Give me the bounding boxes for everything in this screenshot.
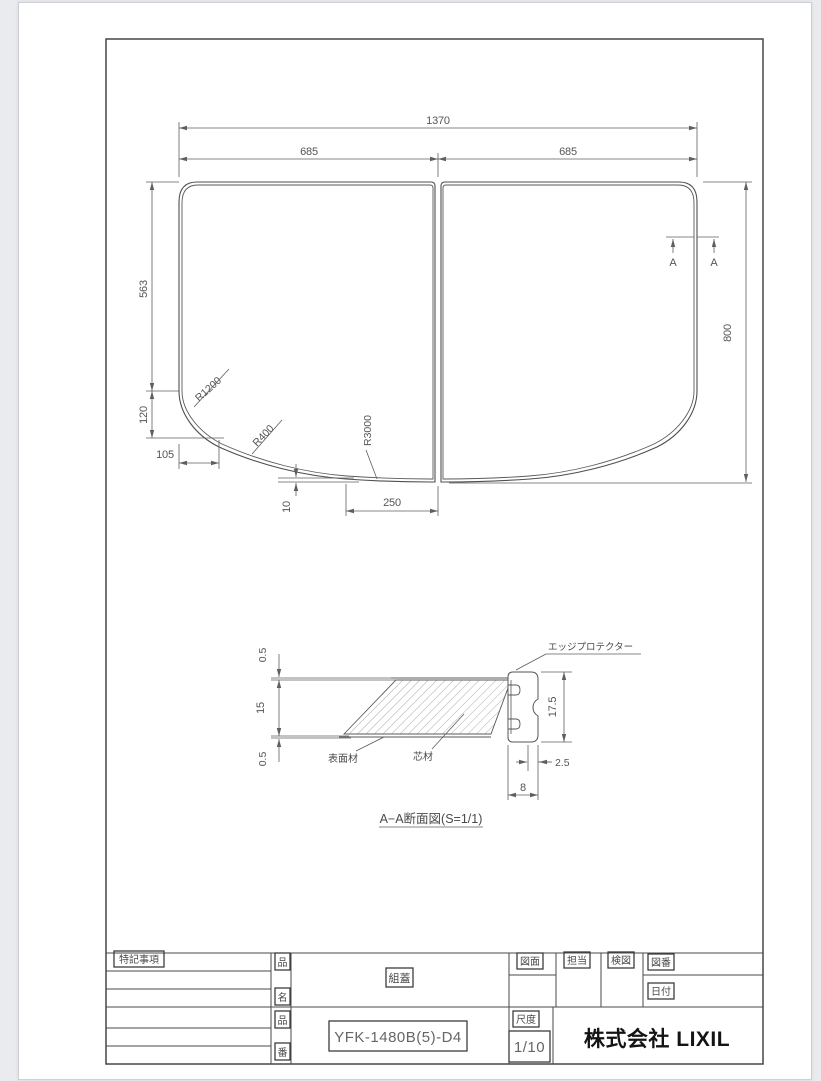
dim-protector-offset: 2.5	[555, 757, 570, 769]
product-no-label-2: 番	[278, 1047, 288, 1059]
edge-protector-shape	[508, 672, 538, 742]
dim-protector-height: 17.5	[547, 697, 559, 718]
dim-height: 800	[722, 324, 734, 342]
dim-total-width: 1370	[426, 115, 450, 127]
scale-value: 1/10	[514, 1039, 545, 1056]
dim-bottom-run: 250	[383, 497, 401, 509]
section-view: 0.5 15 0.5 17.5 2.5 8 エッジプロテクター 表面材 芯材 A…	[255, 642, 641, 827]
dim-radius-1200: R1200	[193, 375, 224, 405]
section-title: A−A断面図(S=1/1)	[380, 811, 483, 826]
dim-side-inset: 105	[156, 449, 174, 461]
drawing-sheet: 1370 685 685 563 120 105 R1200 R400 R300…	[18, 2, 812, 1080]
product-name-label-1: 品	[278, 957, 288, 969]
product-name-label-2: 名	[278, 991, 288, 1004]
lid-right-half	[441, 182, 697, 482]
section-mark-a-right: A	[710, 257, 718, 269]
dim-protector-width: 8	[520, 782, 526, 794]
dim-half-right: 685	[559, 146, 577, 158]
plan-dimension-lines	[146, 122, 752, 516]
product-no-label-1: 品	[278, 1015, 288, 1027]
product-name-value: 組蓋	[389, 972, 411, 985]
date-label: 日付	[651, 985, 671, 998]
dim-core-thickness: 15	[255, 702, 267, 714]
dim-side-drop: 120	[138, 406, 150, 424]
surface-material-label: 表面材	[328, 752, 358, 765]
company-logo-text: 株式会社 LIXIL	[584, 1027, 730, 1051]
plan-dimension-texts: 1370 685 685 563 120 105 R1200 R400 R300…	[138, 115, 734, 513]
core-material-label: 芯材	[413, 750, 433, 763]
dim-bottom-rise: 10	[281, 501, 293, 513]
product-number-value: YFK-1480B(5)-D4	[334, 1029, 462, 1046]
drawing-number-label: 図番	[651, 957, 671, 969]
person-in-charge-label: 担当	[567, 954, 587, 967]
dim-skin-top: 0.5	[257, 648, 269, 663]
lid-left-half	[179, 182, 435, 482]
section-mark-a-left: A	[669, 257, 677, 269]
title-block: 特記事項 品 名 組蓋 品 番 YFK-1480B(5)-D4 図面 担当 検図…	[106, 951, 763, 1064]
notes-label: 特記事項	[119, 953, 159, 966]
check-label: 検図	[611, 954, 631, 967]
dim-skin-bottom: 0.5	[257, 752, 269, 767]
cad-drawing: 1370 685 685 563 120 105 R1200 R400 R300…	[19, 3, 813, 1081]
scale-label: 尺度	[516, 1013, 536, 1026]
dim-radius-3000: R3000	[362, 415, 374, 446]
edge-protector-label: エッジプロテクター	[548, 642, 633, 653]
dim-side-straight: 563	[138, 280, 150, 298]
viewer-canvas: { "canvas": { "background": "#e9ebee", "…	[0, 0, 821, 1080]
dim-radius-400: R400	[251, 423, 277, 450]
drawing-label: 図面	[520, 956, 540, 968]
core-material-shape	[344, 680, 511, 734]
dim-half-left: 685	[300, 146, 318, 158]
